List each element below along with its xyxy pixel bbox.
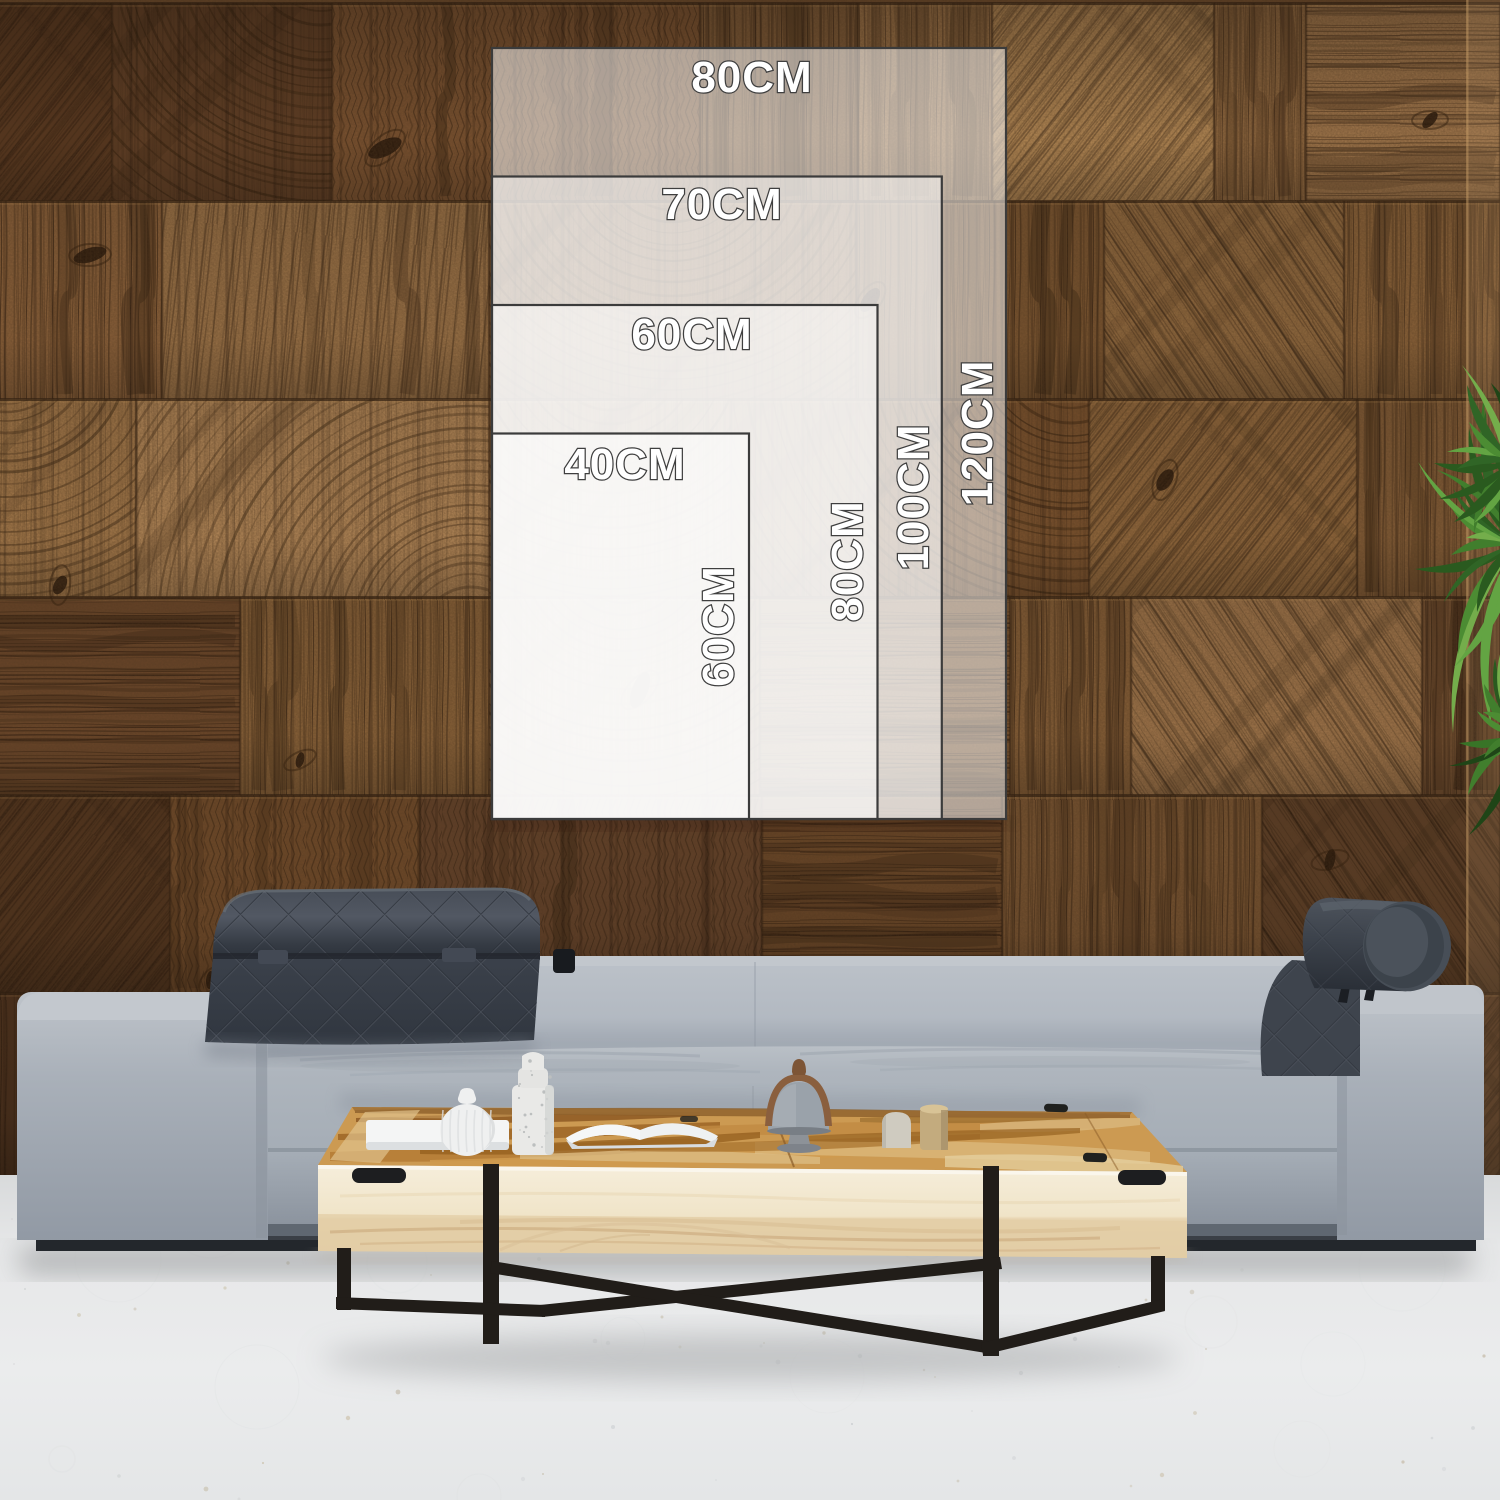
svg-text:80CM: 80CM — [823, 500, 872, 621]
svg-text:100CM: 100CM — [889, 424, 938, 571]
svg-text:120CM: 120CM — [953, 360, 1002, 507]
svg-text:70CM: 70CM — [661, 180, 782, 229]
svg-text:60CM: 60CM — [694, 565, 743, 686]
svg-text:80CM: 80CM — [691, 53, 812, 102]
svg-text:40CM: 40CM — [564, 440, 685, 489]
svg-text:60CM: 60CM — [631, 310, 752, 359]
